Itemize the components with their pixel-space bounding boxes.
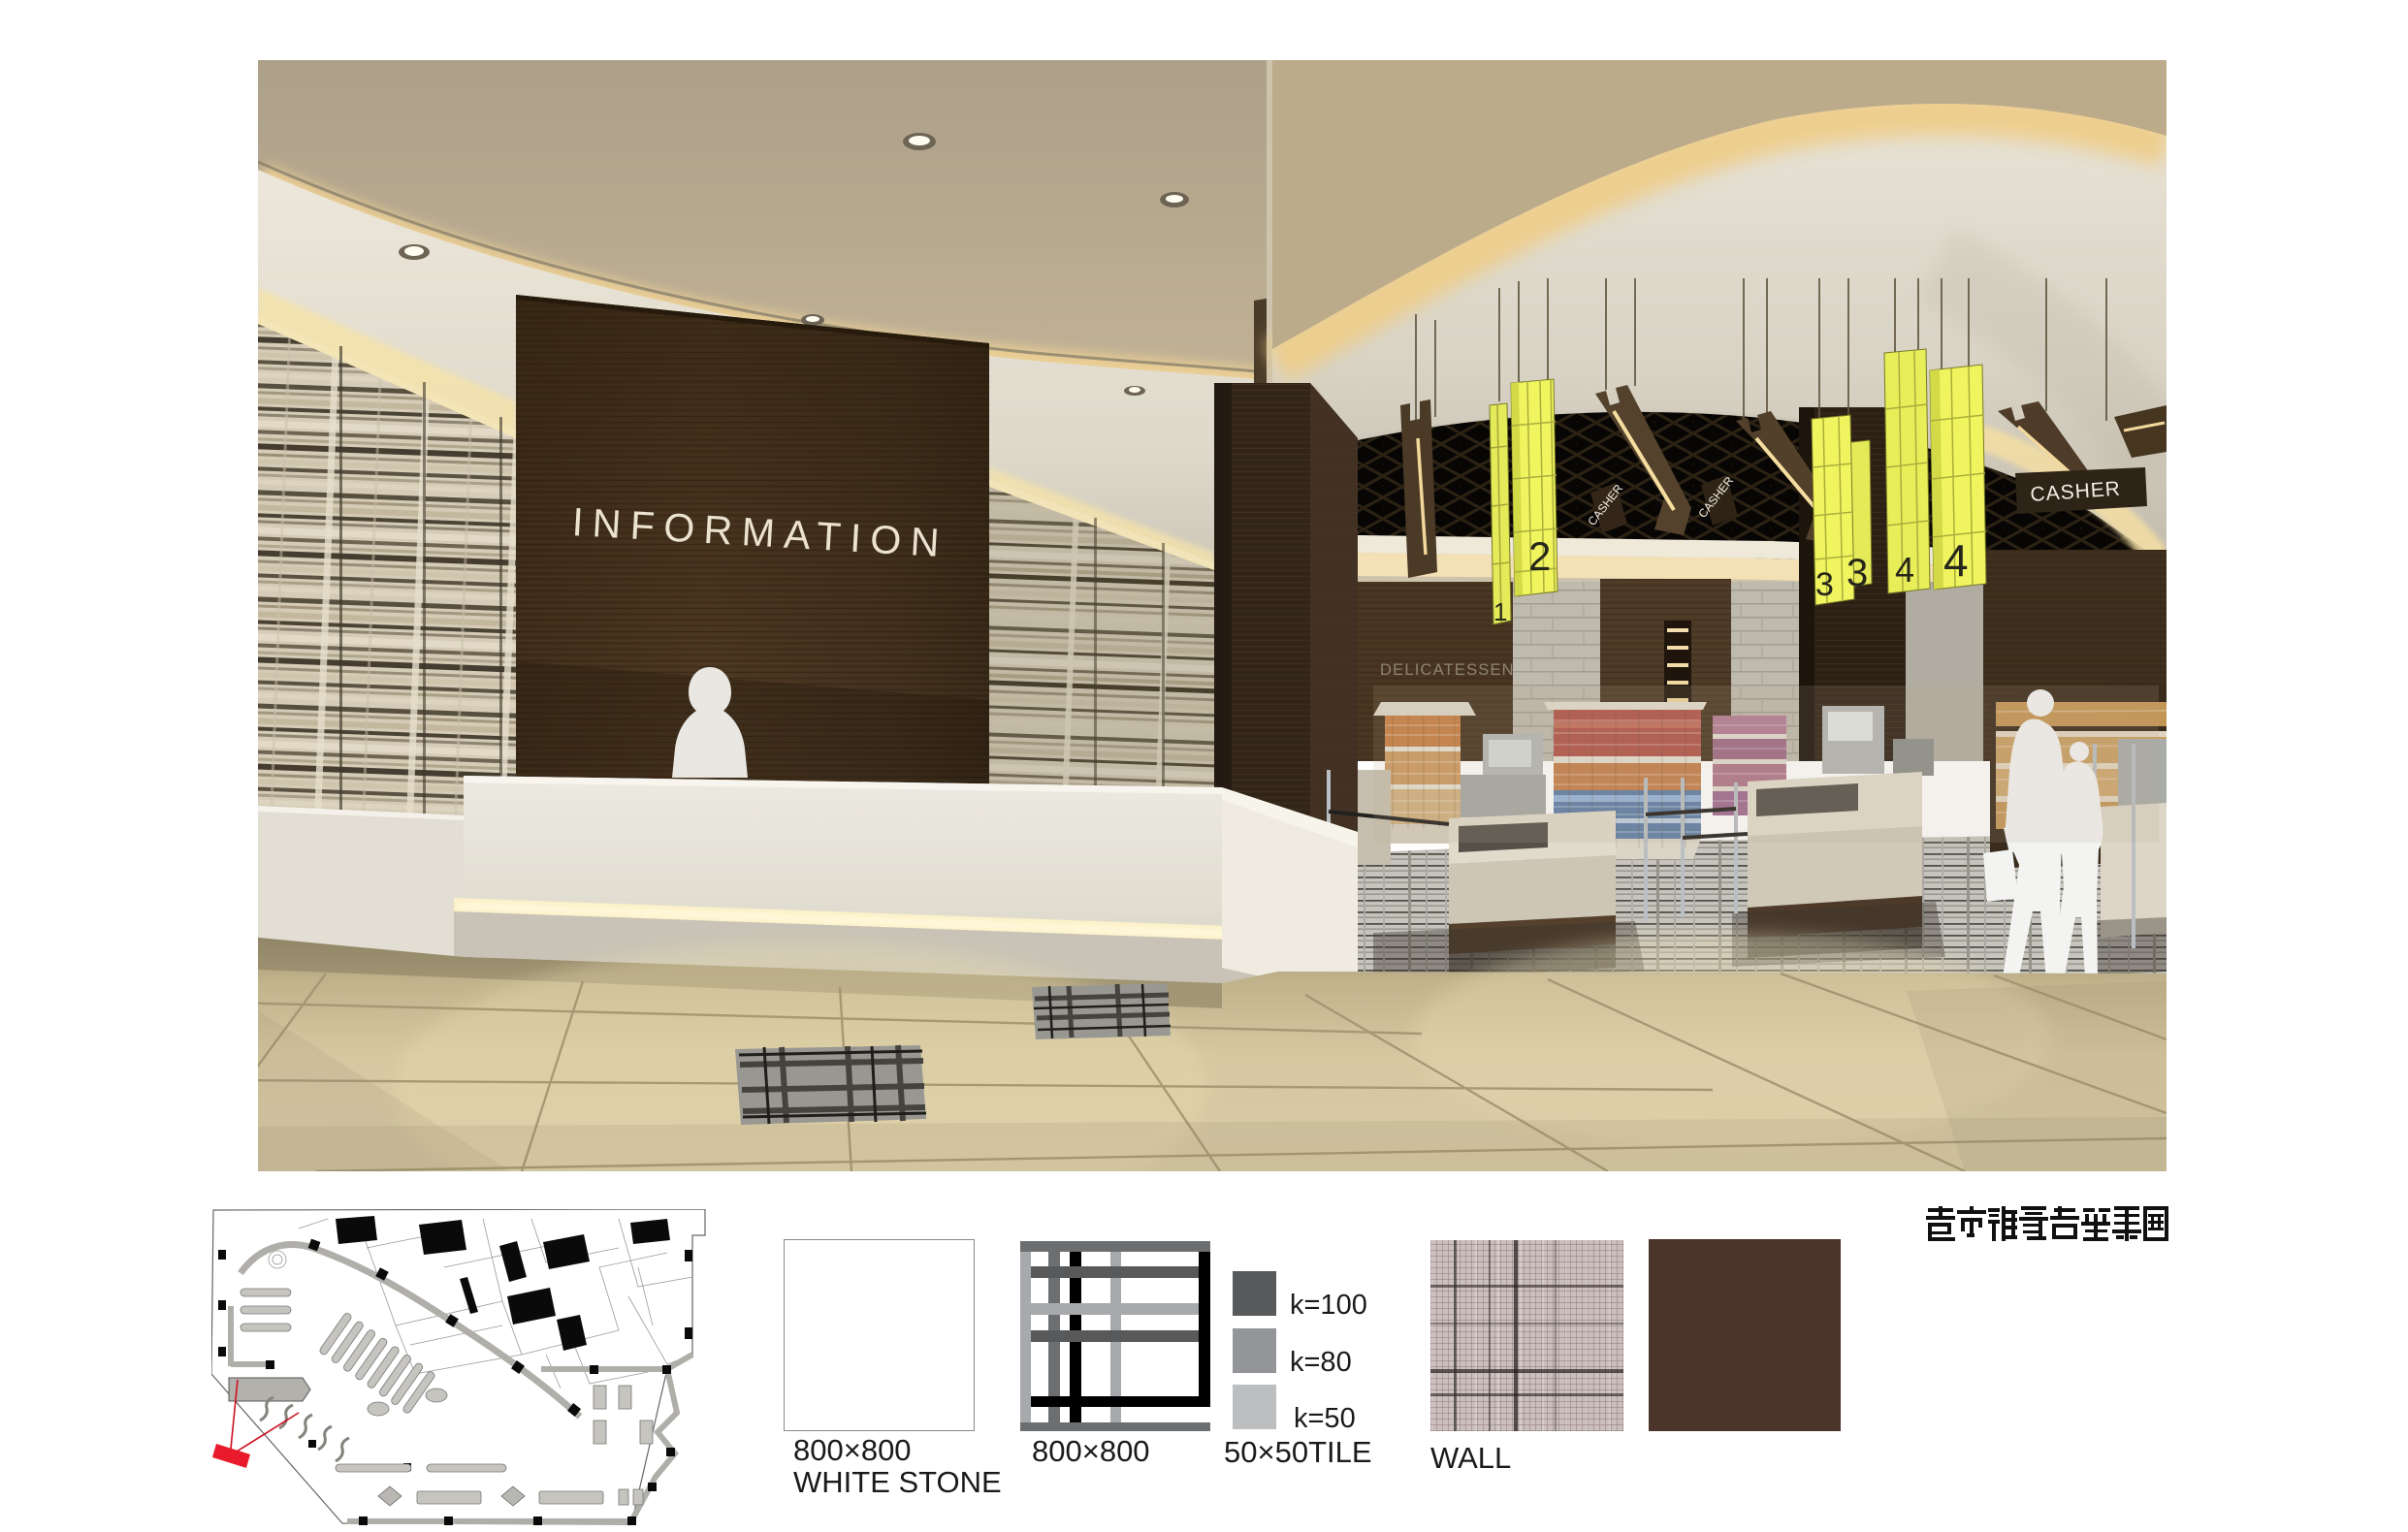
svg-text:4: 4 bbox=[1895, 550, 1914, 590]
svg-text:3: 3 bbox=[1815, 566, 1834, 603]
svg-text:DELICATESSEN: DELICATESSEN bbox=[1380, 661, 1515, 679]
svg-text:4: 4 bbox=[1943, 535, 1969, 586]
svg-text:1: 1 bbox=[1493, 597, 1507, 626]
svg-text:2: 2 bbox=[1528, 533, 1551, 579]
svg-text:3: 3 bbox=[1846, 552, 1868, 594]
